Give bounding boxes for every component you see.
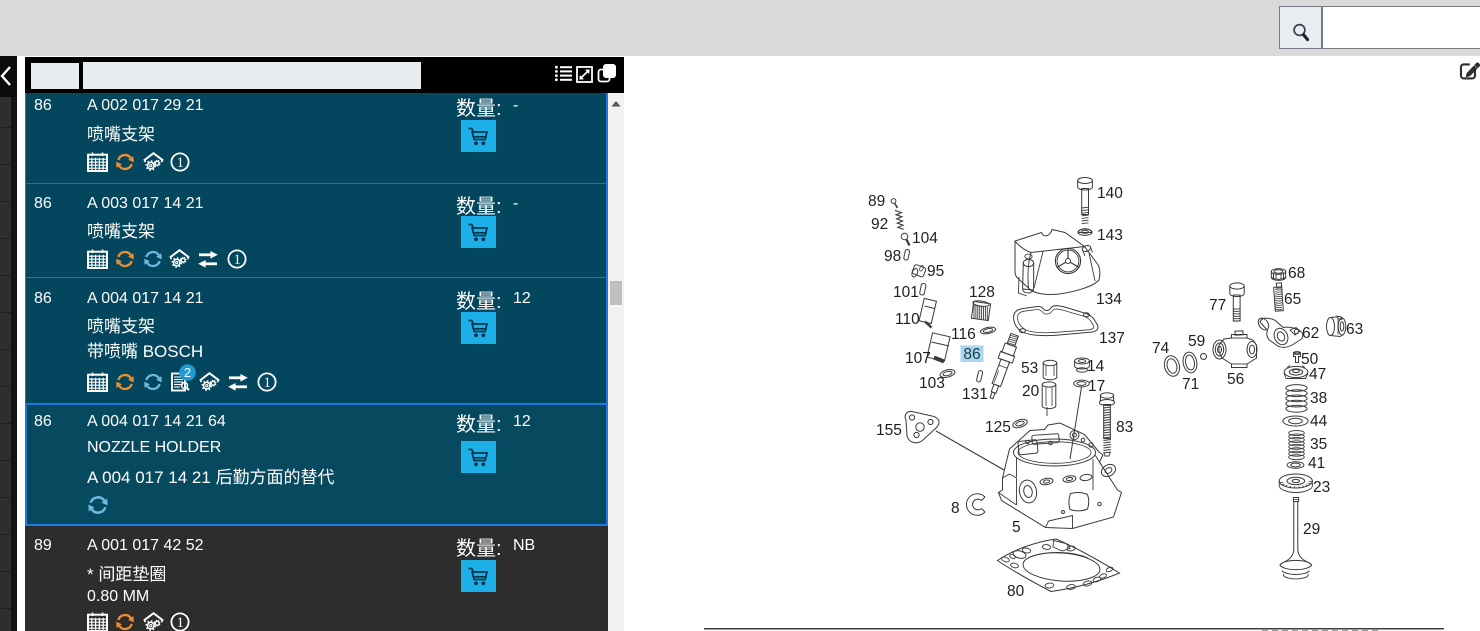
svg-text:98: 98 [884,248,901,265]
svg-text:134: 134 [1096,291,1122,308]
svg-text:71: 71 [1182,376,1199,393]
svg-text:128: 128 [969,284,995,301]
svg-text:1: 1 [177,155,184,171]
svg-text:59: 59 [1188,333,1205,350]
svg-text:41: 41 [1308,455,1325,472]
svg-text:74: 74 [1152,340,1170,357]
svg-text:47: 47 [1309,366,1326,383]
svg-text:140: 140 [1097,185,1123,202]
svg-text:110: 110 [895,311,920,328]
svg-text:62: 62 [1302,325,1319,342]
svg-text:77: 77 [1209,297,1226,314]
svg-text:131: 131 [962,386,988,403]
svg-text:17: 17 [1088,378,1105,395]
svg-text:1: 1 [234,252,241,268]
svg-text:103: 103 [919,375,945,392]
svg-text:68: 68 [1288,265,1305,282]
svg-text:1: 1 [177,615,184,631]
svg-text:1: 1 [264,375,271,391]
svg-text:35: 35 [1310,436,1327,453]
svg-text:143: 143 [1097,227,1123,244]
svg-text:101: 101 [893,284,919,301]
svg-text:89: 89 [868,193,885,210]
svg-text:8: 8 [951,500,960,517]
svg-text:104: 104 [912,230,938,247]
svg-text:107: 107 [905,350,931,367]
svg-text:5: 5 [1012,519,1021,536]
svg-text:80: 80 [1007,583,1025,600]
svg-text:95: 95 [927,263,944,280]
svg-text:125: 125 [985,419,1011,436]
svg-text:65: 65 [1284,291,1301,308]
svg-text:20: 20 [1022,383,1040,400]
svg-text:92: 92 [871,216,888,233]
svg-text:38: 38 [1310,390,1327,407]
svg-text:155: 155 [876,422,902,439]
svg-text:2: 2 [184,365,191,380]
svg-text:63: 63 [1346,321,1363,338]
svg-text:23: 23 [1313,479,1330,496]
svg-text:56: 56 [1227,371,1244,388]
svg-text:116: 116 [951,326,976,343]
svg-text:83: 83 [1116,419,1133,436]
svg-text:53: 53 [1021,360,1038,377]
svg-text:44: 44 [1310,413,1328,430]
svg-text:137: 137 [1099,330,1125,347]
svg-text:86: 86 [963,346,980,363]
svg-text:29: 29 [1303,521,1320,538]
svg-text:14: 14 [1087,358,1105,375]
